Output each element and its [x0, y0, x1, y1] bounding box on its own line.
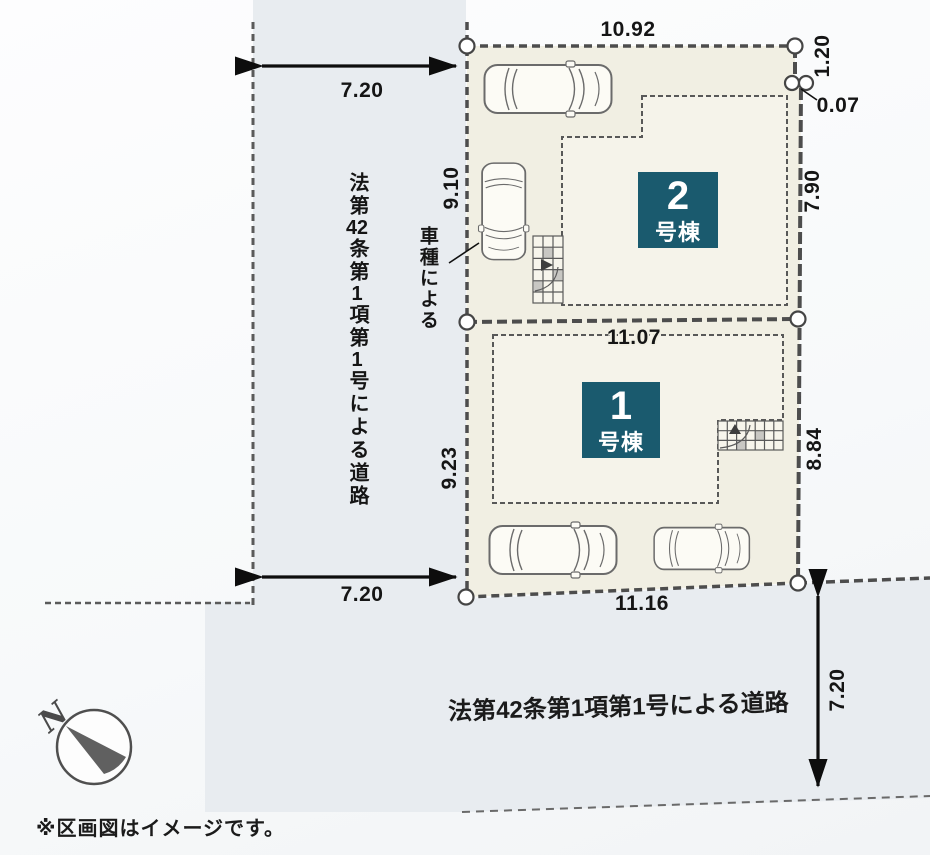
dim-right-jog: 0.07 — [817, 94, 860, 118]
building-1-suffix: 号棟 — [598, 432, 644, 454]
dim-plot1-right: 8.84 — [803, 428, 827, 471]
image-disclaimer-caption: ※区画図はイメージです。 — [36, 812, 285, 841]
dim-bottom-width: 11.16 — [615, 592, 669, 616]
car-right-plot1 — [654, 524, 749, 573]
building-2-entrance-steps — [533, 236, 563, 303]
road-label-segment: 1 — [346, 350, 368, 370]
building-1-label: 1 号棟 — [582, 382, 660, 458]
building-2-label: 2 号棟 — [638, 172, 718, 248]
jog-leader-line — [801, 89, 817, 100]
road-label-segment: 条第 — [346, 238, 368, 284]
building-2-number: 2 — [667, 176, 689, 216]
dim-plot2-right: 7.90 — [801, 170, 825, 213]
building-1-entrance-steps — [718, 421, 783, 450]
dim-left-road-width-top: 7.20 — [341, 79, 384, 103]
car-top-plot2 — [485, 61, 612, 117]
dim-right-setback: 1.20 — [811, 35, 835, 78]
road-label-segment: 1 — [346, 284, 368, 304]
dim-plot2-left: 9.10 — [440, 167, 464, 210]
road-label-segment: 号による道路 — [346, 370, 368, 508]
dim-left-road-width-bottom: 7.20 — [341, 583, 384, 607]
dim-plot1-left: 9.23 — [438, 447, 462, 490]
building-1-number: 1 — [610, 386, 632, 426]
building-2-suffix: 号棟 — [655, 222, 701, 244]
car-type-note: 車種による — [416, 226, 437, 331]
dim-bottom-road-width: 7.20 — [826, 669, 850, 712]
road-label-segment: 42 — [346, 218, 368, 238]
road-label-segment: 法第 — [346, 172, 368, 218]
dim-boundary-width: 11.07 — [607, 326, 661, 350]
road-label-segment: 項第 — [346, 304, 368, 350]
dim-top-width: 10.92 — [600, 18, 655, 42]
site-plan-graphics — [0, 0, 930, 855]
car-left-plot1 — [490, 522, 617, 578]
car-side-plot2 — [479, 163, 529, 260]
left-road-label: 法第42条第1項第1号による道路 — [346, 172, 368, 508]
lot-layout-diagram: 10.92 1.20 0.07 9.10 7.90 11.07 9.23 8.8… — [0, 0, 930, 855]
